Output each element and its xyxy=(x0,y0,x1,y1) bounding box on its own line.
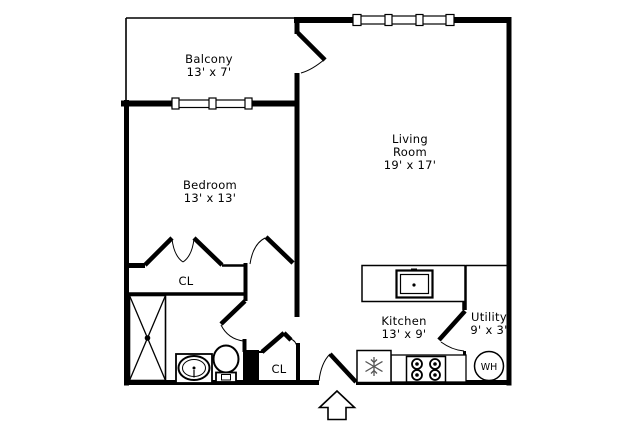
entry-arrow-icon xyxy=(320,391,355,420)
toilet-icon xyxy=(214,346,239,383)
bedroom-size: 13' x 13' xyxy=(183,192,237,205)
bedroom-closet-label: CL xyxy=(178,275,193,288)
kitchen-sink-icon xyxy=(397,269,433,298)
bedroom-label: Bedroom 13' x 13' xyxy=(183,179,237,205)
water-heater-label: WH xyxy=(481,361,498,374)
bedroom-closet-text: CL xyxy=(178,275,193,288)
kitchen-label: Kitchen 13' x 9' xyxy=(381,315,426,341)
utility-size: 9' x 3' xyxy=(470,324,507,337)
exterior-walls xyxy=(121,17,512,386)
entry-closet-text: CL xyxy=(271,363,286,376)
balcony-size: 13' x 7' xyxy=(185,66,233,79)
balcony-door xyxy=(298,33,325,73)
stove-icon xyxy=(407,357,446,383)
entry-closet-label: CL xyxy=(271,363,286,376)
plumbing-chase xyxy=(243,350,259,383)
living-room-label: Living Room 19' x 17' xyxy=(384,133,436,172)
entry-door xyxy=(319,354,356,382)
living-room-window xyxy=(353,15,454,26)
kitchen-size: 13' x 9' xyxy=(381,328,426,341)
bifold-closet-doors xyxy=(145,238,222,265)
utility-door xyxy=(439,311,465,351)
bedroom-balcony-window xyxy=(172,98,252,109)
balcony-label: Balcony 13' x 7' xyxy=(185,53,233,79)
bathroom-door xyxy=(221,301,245,341)
laundry-box-icon xyxy=(130,296,166,381)
utility-label: Utility 9' x 3' xyxy=(470,311,507,337)
bedroom-door xyxy=(250,237,293,264)
water-heater-text: WH xyxy=(481,361,498,374)
living-room-size: 19' x 17' xyxy=(384,159,436,172)
floor-plan: Balcony 13' x 7' Living Room 19' x 17' B… xyxy=(0,0,640,427)
floor-plan-drawing xyxy=(0,0,640,427)
refrigerator-icon xyxy=(357,351,391,383)
entry-closet-door xyxy=(258,333,297,352)
bathroom-sink-icon xyxy=(176,354,212,383)
